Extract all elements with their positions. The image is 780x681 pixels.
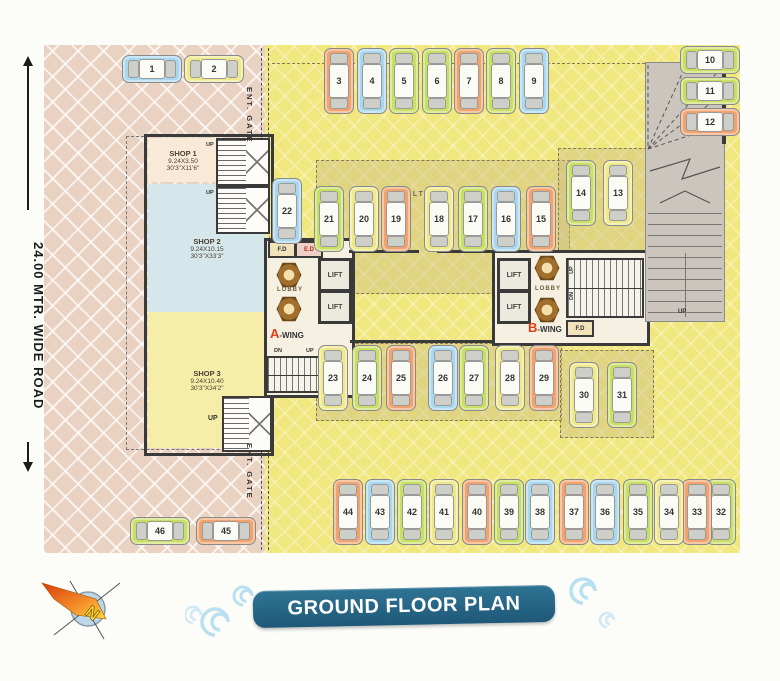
parking-stall-34: 34: [654, 479, 684, 545]
parking-stall-21: 21: [314, 186, 344, 252]
parking-stall-10: 10: [680, 46, 740, 74]
plan-drawing: ENT. GATE ENT. GATE SHOP 1 9.24X3.50 30'…: [44, 45, 740, 553]
parking-stall-35: 35: [623, 479, 653, 545]
parking-stall-22: 22: [272, 178, 302, 244]
parking-stall-41: 41: [429, 479, 459, 545]
parking-stall-8: 8: [486, 48, 516, 114]
plan-title-banner: GROUND FLOOR PLAN: [253, 585, 556, 628]
parking-stall-6: 6: [422, 48, 452, 114]
parking-stall-19: 19: [381, 186, 411, 252]
parking-stall-2: 2: [184, 55, 244, 83]
parking-stall-13: 13: [603, 160, 633, 226]
parking-stall-33: 33: [682, 479, 712, 545]
parking-stall-45: 45: [196, 517, 256, 545]
parking-stall-11: 11: [680, 77, 740, 105]
parking-stall-39: 39: [494, 479, 524, 545]
plan-title: GROUND FLOOR PLAN: [287, 593, 520, 621]
road-arrow-down: [27, 442, 29, 468]
parking-stall-37: 37: [559, 479, 589, 545]
parking-stall-42: 42: [397, 479, 427, 545]
parking-stall-4: 4: [357, 48, 387, 114]
parking-stall-28: 28: [495, 345, 525, 411]
parking-stall-18: 18: [424, 186, 454, 252]
parking-stall-3: 3: [324, 48, 354, 114]
parking-stall-14: 14: [566, 160, 596, 226]
parking-stall-7: 7: [454, 48, 484, 114]
parking-stall-5: 5: [389, 48, 419, 114]
road-arrow-up: [27, 60, 29, 210]
parking-stall-38: 38: [525, 479, 555, 545]
parking-stall-20: 20: [349, 186, 379, 252]
floor-plan-page: ENT. GATE ENT. GATE SHOP 1 9.24X3.50 30'…: [0, 0, 780, 681]
parking-stall-30: 30: [569, 362, 599, 428]
parking-stall-23: 23: [318, 345, 348, 411]
parking-stall-36: 36: [590, 479, 620, 545]
parking-stall-29: 29: [529, 345, 559, 411]
parking-stall-12: 12: [680, 108, 740, 136]
parking-stall-46: 46: [130, 517, 190, 545]
parking-stall-27: 27: [459, 345, 489, 411]
parking-stall-26: 26: [428, 345, 458, 411]
parking-stall-40: 40: [462, 479, 492, 545]
parking-stall-44: 44: [333, 479, 363, 545]
parking-stall-1: 1: [122, 55, 182, 83]
road-label: 24.00 MTR. WIDE ROAD: [12, 215, 46, 437]
parking-stall-16: 16: [491, 186, 521, 252]
north-compass: N: [40, 575, 128, 649]
parking-stall-43: 43: [365, 479, 395, 545]
parking-stalls-layer: 1234567891011121314151617181920212223242…: [44, 45, 740, 553]
parking-stall-24: 24: [352, 345, 382, 411]
parking-stall-17: 17: [458, 186, 488, 252]
parking-stall-31: 31: [607, 362, 637, 428]
parking-stall-25: 25: [386, 345, 416, 411]
parking-stall-9: 9: [519, 48, 549, 114]
parking-stall-15: 15: [526, 186, 556, 252]
